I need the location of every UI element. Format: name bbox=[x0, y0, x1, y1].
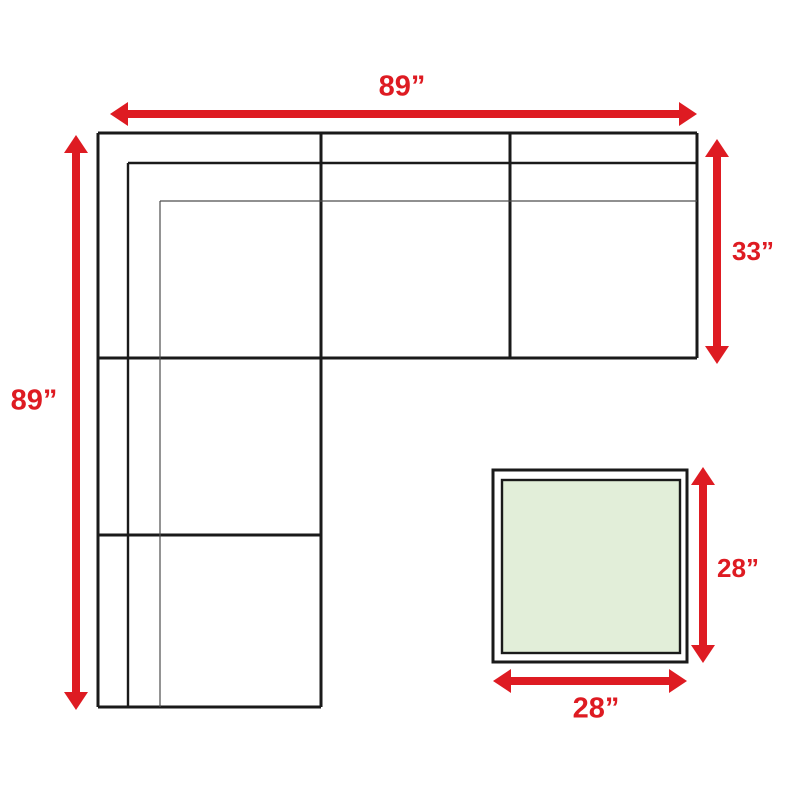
table-outline bbox=[493, 470, 687, 662]
sofa-length-label: 89” bbox=[11, 387, 58, 416]
table-width-arrow bbox=[493, 669, 687, 693]
table-inner-surface bbox=[502, 480, 680, 653]
seat-depth-arrow bbox=[705, 139, 729, 364]
seat-depth-label: 33” bbox=[732, 238, 774, 264]
table-height-arrow bbox=[691, 467, 715, 663]
sectional-dimension-diagram: 89” 89” 33” 28” 28” bbox=[0, 0, 800, 800]
diagram-drawing bbox=[0, 0, 800, 800]
sofa-length-arrow bbox=[64, 135, 88, 710]
sofa-width-arrow bbox=[110, 102, 697, 126]
sofa-width-label: 89” bbox=[379, 73, 426, 102]
table-width-label: 28” bbox=[573, 695, 620, 724]
table-height-label: 28” bbox=[717, 555, 759, 581]
